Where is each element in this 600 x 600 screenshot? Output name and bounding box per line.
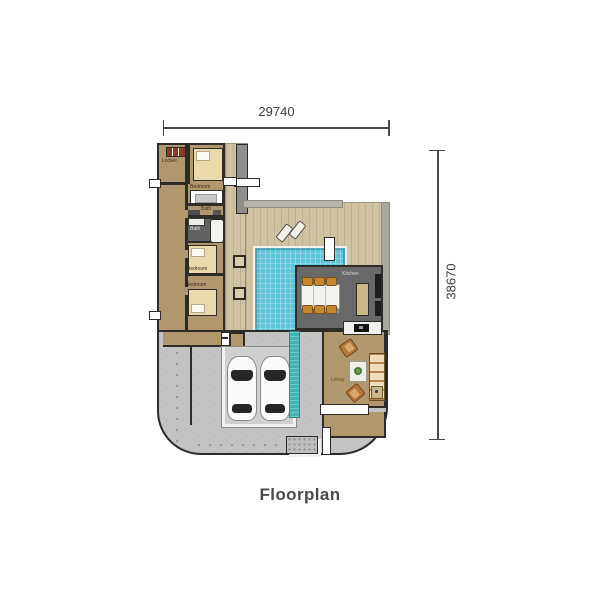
bedroom-label: Bedroom bbox=[186, 282, 206, 288]
door-fin bbox=[234, 178, 260, 187]
grate-icon bbox=[286, 436, 318, 454]
page-title: Floorplan bbox=[200, 485, 400, 505]
height-dimension-label: 38670 bbox=[444, 252, 459, 312]
joint-line bbox=[198, 444, 286, 446]
side-table-icon bbox=[371, 386, 383, 399]
sink-icon bbox=[188, 218, 205, 226]
floorplan-canvas: Locker Bedroom Bath Bath Bedroom Bedroom… bbox=[0, 0, 600, 600]
car-icon bbox=[227, 356, 257, 421]
entry-wall-fin bbox=[320, 404, 369, 415]
chair-icon bbox=[302, 305, 313, 314]
coffee-table-icon bbox=[349, 361, 367, 382]
car-icon bbox=[260, 356, 290, 421]
bed-icon bbox=[193, 148, 223, 181]
wall bbox=[159, 182, 187, 185]
kitchen-counter-icon bbox=[375, 301, 381, 316]
kitchen-island-icon bbox=[356, 283, 369, 316]
joint-line bbox=[176, 352, 178, 447]
column-icon bbox=[233, 287, 246, 300]
corridor-wall bbox=[185, 145, 188, 331]
kitchen-label: Kitchen bbox=[342, 271, 359, 277]
bath-label: Bath bbox=[190, 226, 200, 232]
entry-door bbox=[322, 427, 331, 455]
wall bbox=[185, 273, 223, 276]
door-gap bbox=[185, 250, 188, 258]
entry-patio bbox=[322, 412, 386, 438]
hallway bbox=[163, 332, 229, 347]
kitchen-counter-icon bbox=[375, 274, 381, 298]
bathtub-icon bbox=[210, 219, 224, 243]
tv-console-icon bbox=[343, 321, 382, 335]
dimension-tick bbox=[163, 120, 165, 136]
garage-inner-wall bbox=[190, 345, 192, 425]
chair-icon bbox=[314, 277, 325, 286]
vestibule bbox=[229, 332, 245, 348]
door-fin bbox=[149, 311, 161, 320]
dimension-tick bbox=[388, 120, 390, 136]
water-feature bbox=[289, 331, 300, 418]
width-dimension-line bbox=[163, 127, 389, 129]
pool-post bbox=[324, 237, 335, 261]
locker-label: Locker bbox=[162, 158, 177, 164]
chair-icon bbox=[326, 277, 337, 286]
chair-icon bbox=[314, 305, 325, 314]
chair-icon bbox=[326, 305, 337, 314]
bedroom-label: Bedroom bbox=[187, 266, 207, 272]
deck-edge-top bbox=[243, 200, 343, 208]
chair-icon bbox=[302, 277, 313, 286]
height-dimension-line bbox=[437, 150, 439, 439]
bath-label: Bath bbox=[201, 206, 211, 212]
width-dimension-label: 29740 bbox=[163, 104, 390, 119]
dimension-tick bbox=[429, 439, 445, 441]
door-gap bbox=[185, 210, 188, 218]
column-icon bbox=[233, 255, 246, 268]
dimension-tick bbox=[429, 150, 445, 152]
tv-icon bbox=[354, 324, 369, 332]
living-label: Living bbox=[331, 377, 344, 383]
locker-units-icon bbox=[166, 147, 187, 157]
door-fin bbox=[149, 179, 161, 188]
bed-icon bbox=[188, 289, 217, 316]
door-fin bbox=[223, 177, 237, 186]
door-gap bbox=[185, 287, 188, 295]
